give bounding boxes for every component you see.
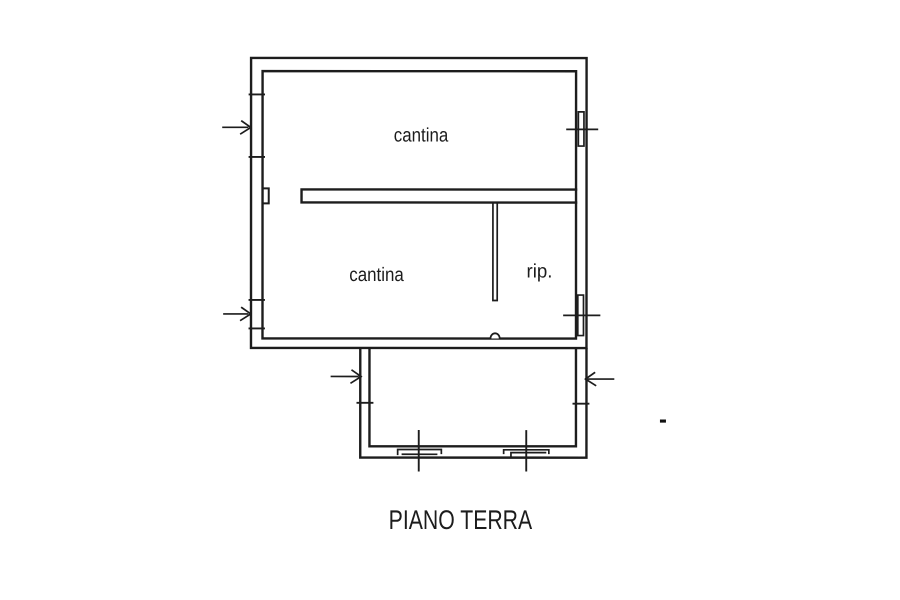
- svg-text:rip.: rip.: [527, 261, 553, 283]
- svg-text:cantina: cantina: [394, 124, 449, 146]
- svg-text:cantina: cantina: [349, 264, 404, 286]
- svg-text:PIANO TERRA: PIANO TERRA: [389, 505, 533, 535]
